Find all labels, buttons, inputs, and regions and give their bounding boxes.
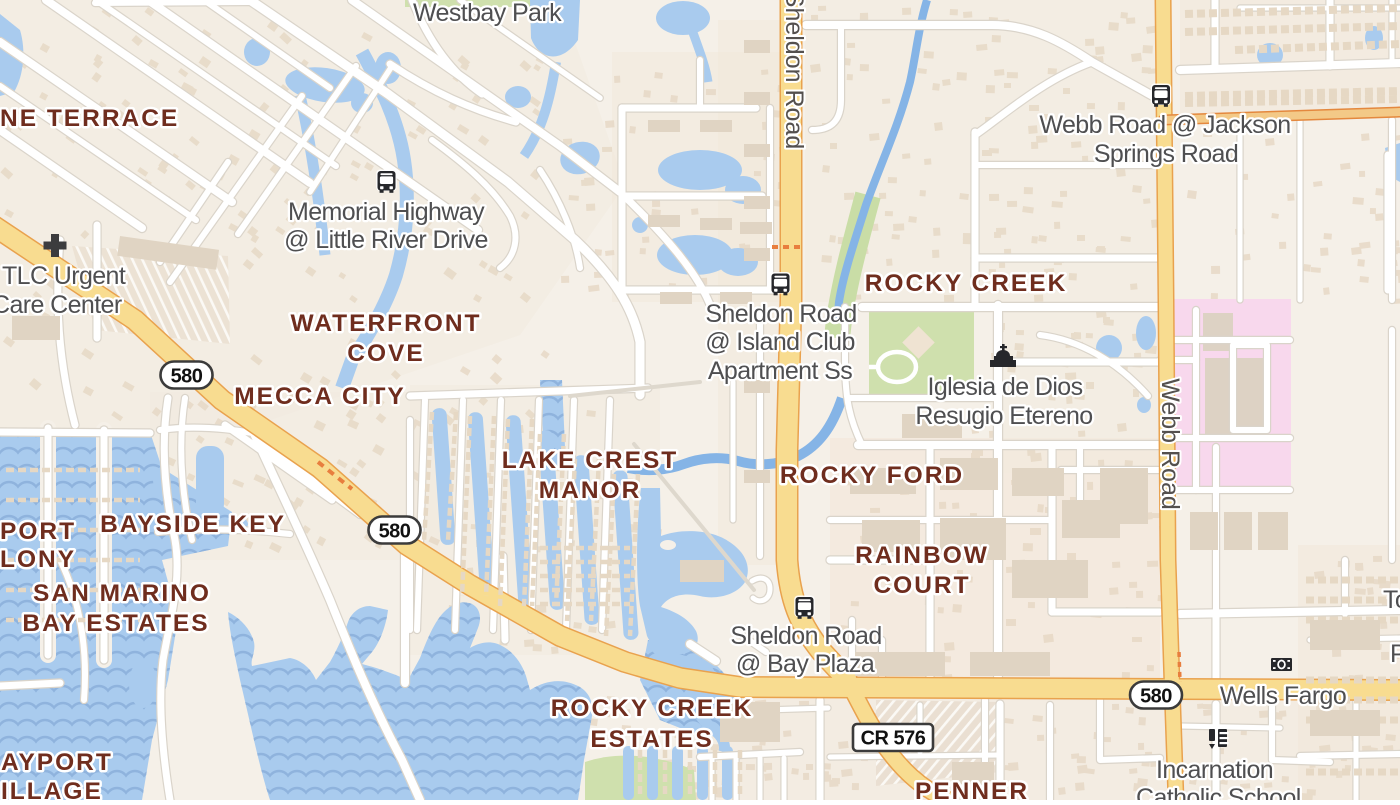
- svg-text:PENNER: PENNER: [915, 778, 1029, 800]
- svg-text:ESTATES: ESTATES: [590, 726, 713, 753]
- svg-text:MANOR: MANOR: [539, 477, 642, 504]
- svg-text:Westbay Park: Westbay Park: [413, 0, 562, 27]
- svg-text:BAY ESTATES: BAY ESTATES: [22, 610, 209, 637]
- svg-text:NE TERRACE: NE TERRACE: [0, 105, 179, 132]
- svg-text:@ Little River Drive: @ Little River Drive: [284, 226, 488, 254]
- svg-text:ILLAGE: ILLAGE: [1, 778, 103, 800]
- svg-text:Wells Fargo: Wells Fargo: [1220, 682, 1346, 710]
- svg-text:580: 580: [171, 366, 203, 388]
- svg-text:Pa: Pa: [1390, 640, 1400, 668]
- svg-text:COURT: COURT: [873, 572, 970, 599]
- svg-text:LONY: LONY: [0, 546, 76, 573]
- svg-text:LAKE CREST: LAKE CREST: [502, 447, 679, 474]
- svg-text:Sheldon Road: Sheldon Road: [730, 622, 881, 650]
- svg-text:Webb Road: Webb Road: [1156, 378, 1184, 510]
- svg-text:MECCA CITY: MECCA CITY: [234, 383, 406, 410]
- svg-text:TLC Urgent: TLC Urgent: [2, 262, 126, 290]
- svg-text:PORT: PORT: [0, 518, 76, 545]
- svg-text:Sheldon Road: Sheldon Road: [780, 0, 808, 149]
- svg-text:CR 576: CR 576: [861, 728, 926, 750]
- svg-text:Memorial Highway: Memorial Highway: [288, 198, 485, 226]
- svg-text:ROCKY CREEK: ROCKY CREEK: [865, 270, 1068, 297]
- svg-text:Apartment Ss: Apartment Ss: [708, 357, 852, 385]
- svg-text:Sheldon Road: Sheldon Road: [705, 300, 856, 328]
- svg-text:Iglesia de Dios: Iglesia de Dios: [928, 373, 1083, 401]
- svg-text:580: 580: [379, 521, 411, 543]
- svg-text:Webb Road @ Jackson: Webb Road @ Jackson: [1039, 111, 1290, 139]
- svg-text:@ Island Club: @ Island Club: [705, 328, 855, 356]
- svg-text:COVE: COVE: [347, 340, 424, 367]
- svg-text:WATERFRONT: WATERFRONT: [290, 310, 481, 337]
- svg-text:ROCKY FORD: ROCKY FORD: [780, 462, 964, 489]
- svg-text:AYPORT: AYPORT: [1, 749, 113, 776]
- svg-text:SAN MARINO: SAN MARINO: [33, 580, 211, 607]
- svg-text:ROCKY CREEK: ROCKY CREEK: [551, 695, 754, 722]
- svg-text:Town: Town: [1383, 586, 1400, 614]
- svg-text:Resugio Etereno: Resugio Etereno: [915, 402, 1092, 430]
- svg-text:Springs Road: Springs Road: [1094, 140, 1238, 168]
- svg-text:580: 580: [1140, 686, 1172, 708]
- svg-text:Incarnation: Incarnation: [1156, 756, 1273, 784]
- svg-text:RAINBOW: RAINBOW: [855, 542, 989, 569]
- svg-text:@ Bay Plaza: @ Bay Plaza: [736, 650, 875, 678]
- svg-text:Catholic School: Catholic School: [1136, 784, 1301, 800]
- svg-text:Care Center: Care Center: [0, 291, 122, 319]
- svg-text:BAYSIDE KEY: BAYSIDE KEY: [100, 511, 286, 538]
